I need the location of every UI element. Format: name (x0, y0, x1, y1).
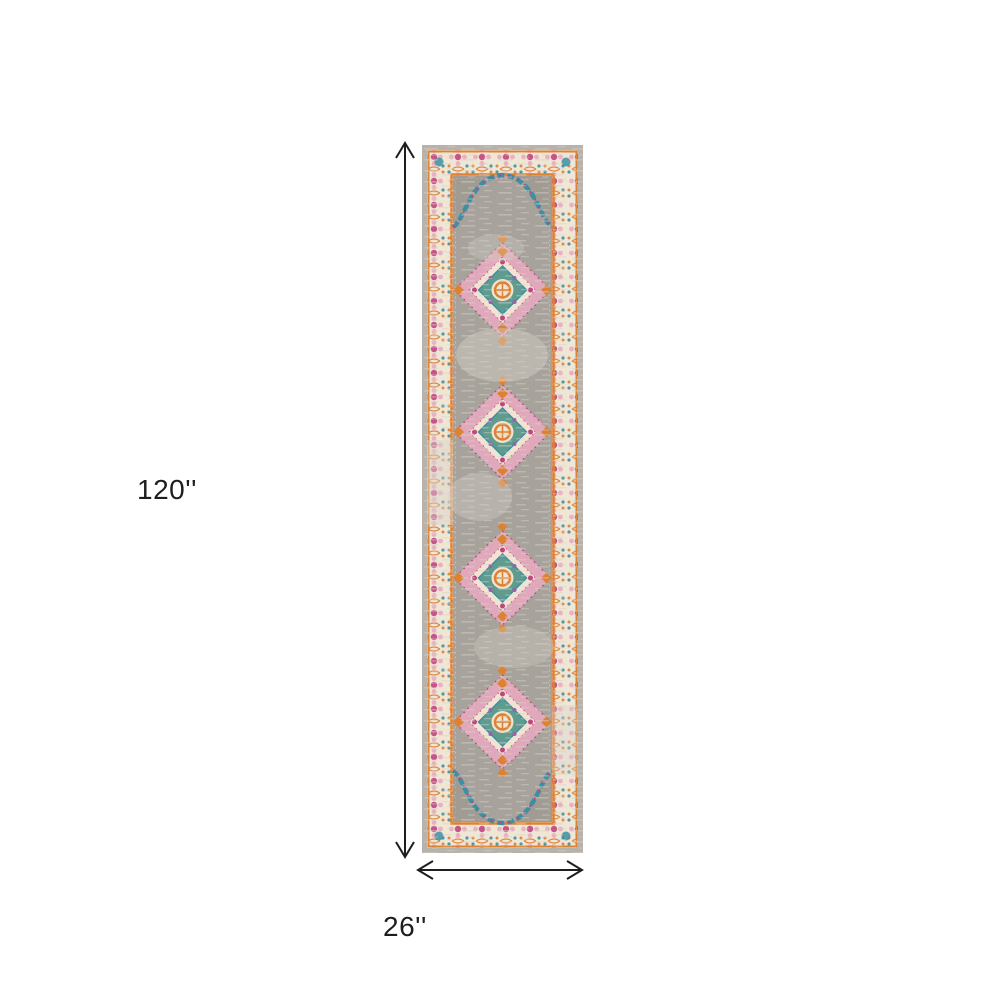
width-dimension-label: 26'' (383, 913, 427, 941)
rug-image (422, 145, 583, 853)
height-dimension-arrow (396, 143, 414, 857)
width-dimension-arrow (418, 861, 582, 879)
product-dimension-diagram: 120'' 26'' (0, 0, 1000, 1000)
height-dimension-label: 120'' (137, 476, 197, 504)
